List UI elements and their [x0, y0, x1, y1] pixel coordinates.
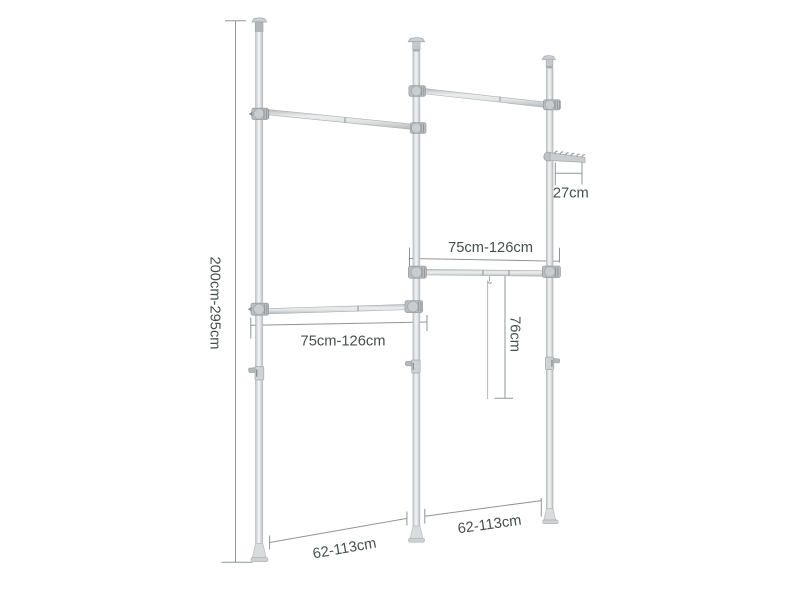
svg-text:75cm-126cm: 75cm-126cm: [301, 334, 386, 350]
svg-text:27cm: 27cm: [553, 186, 589, 202]
svg-text:76cm: 76cm: [507, 316, 523, 352]
svg-text:75cm-126cm: 75cm-126cm: [448, 240, 533, 256]
svg-text:200cm-295cm: 200cm-295cm: [207, 256, 223, 349]
